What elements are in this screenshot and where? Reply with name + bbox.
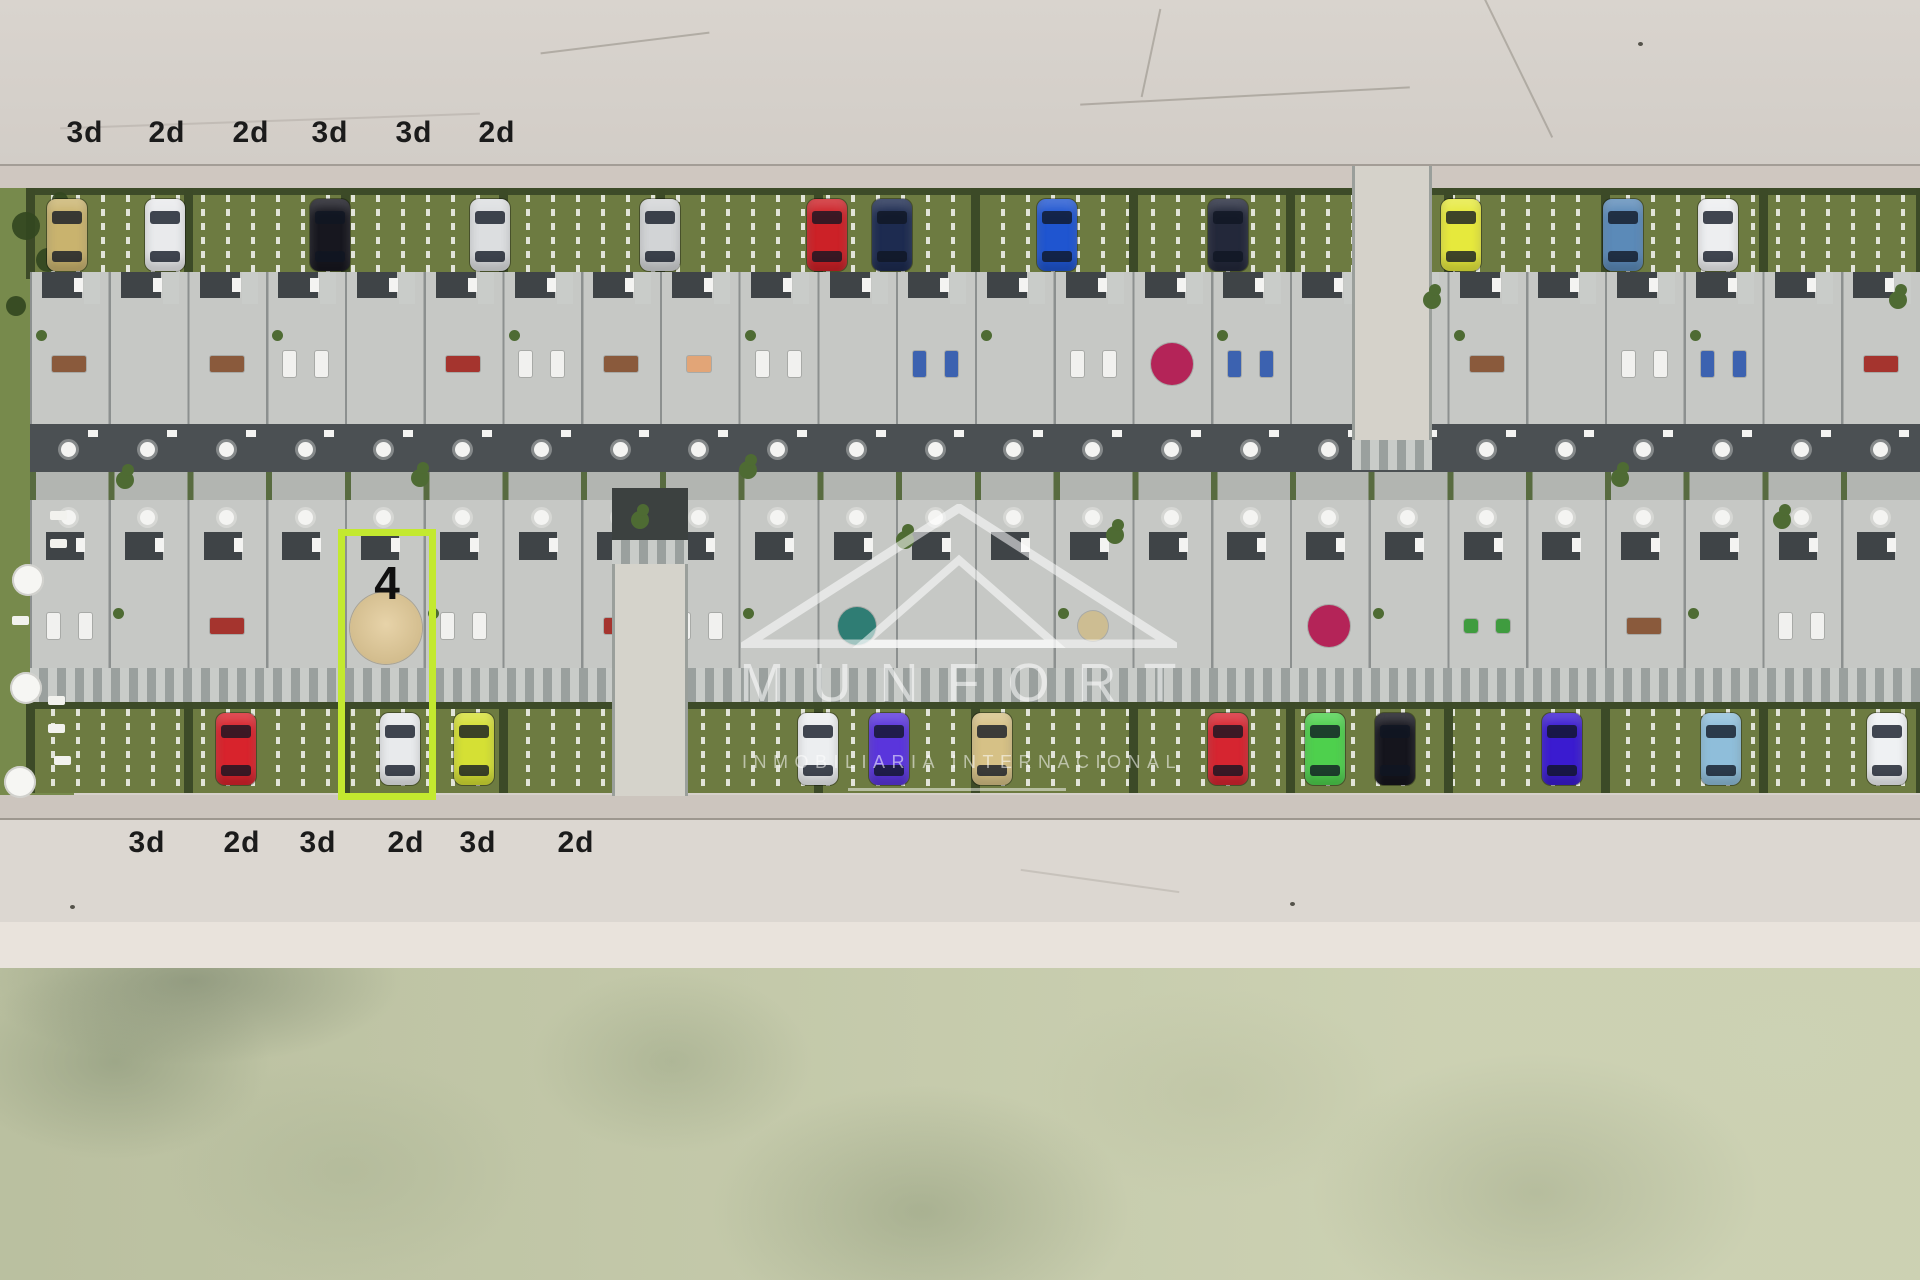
- terrace-furniture-white: [1811, 613, 1824, 639]
- unit-door: [389, 278, 398, 292]
- unit-door: [310, 278, 319, 292]
- terrace-furniture-blue: [1260, 351, 1273, 377]
- car-rear-window: [1872, 765, 1902, 776]
- parked-car: [1441, 199, 1481, 271]
- car-rear-window: [315, 251, 345, 262]
- car-windshield: [150, 211, 180, 224]
- terrace-furniture-white: [519, 351, 532, 377]
- unit-door: [942, 538, 951, 552]
- plan-label-bottom: 2d: [557, 826, 594, 860]
- car-rear-window: [803, 765, 833, 776]
- unit-door: [785, 538, 794, 552]
- terrace-furniture-white: [283, 351, 296, 377]
- terrace-furniture-red: [446, 356, 480, 372]
- car-windshield: [1547, 725, 1577, 738]
- highlight-unit-number: 4: [374, 556, 400, 610]
- terrace-furniture-crimson: [1151, 343, 1193, 385]
- unit-walkway: [950, 272, 966, 304]
- patio-table: [61, 442, 76, 457]
- unit-door: [1887, 538, 1896, 552]
- patio-table: [849, 442, 864, 457]
- patio-table: [770, 442, 785, 457]
- roof-plant: [272, 330, 283, 341]
- car-rear-window: [1213, 765, 1243, 776]
- car-rear-window: [1213, 251, 1243, 262]
- plan-label-bottom: 3d: [459, 826, 496, 860]
- unit-door: [1570, 278, 1579, 292]
- lower-sidewalk: [0, 795, 1920, 820]
- road-speck: [1290, 902, 1295, 906]
- car-windshield: [221, 725, 251, 738]
- parking-hedge: [499, 702, 508, 793]
- garden-tree: [417, 462, 429, 474]
- roof-plant: [1058, 608, 1069, 619]
- facade-door: [1112, 430, 1122, 437]
- facade-door: [1899, 430, 1909, 437]
- roof-plant: [981, 330, 992, 341]
- beach-umbrella: [10, 672, 42, 704]
- car-windshield: [977, 725, 1007, 738]
- facade-door: [324, 430, 334, 437]
- patio-table: [613, 442, 628, 457]
- north-passage-stairs: [1352, 440, 1432, 470]
- parking-hedge: [1129, 188, 1138, 279]
- unit-walkway: [320, 272, 336, 304]
- car-windshield: [1213, 211, 1243, 224]
- patio-table: [1873, 510, 1888, 525]
- terrace-furniture-red: [210, 618, 244, 634]
- parked-car: [807, 199, 847, 271]
- plan-label-top: 2d: [148, 116, 185, 150]
- patio-table: [534, 442, 549, 457]
- roof-plant: [1217, 330, 1228, 341]
- car-windshield: [812, 211, 842, 224]
- sun-lounger: [54, 756, 71, 765]
- patio-table: [219, 442, 234, 457]
- car-windshield: [1872, 725, 1902, 738]
- terrace-furniture-white: [79, 613, 92, 639]
- car-windshield: [1042, 211, 1072, 224]
- parking-hedge: [1286, 702, 1295, 793]
- patio-table: [1479, 510, 1494, 525]
- sun-lounger: [48, 724, 65, 733]
- facade-door: [1033, 430, 1043, 437]
- unit-walkway: [872, 272, 888, 304]
- patio-table: [1400, 510, 1415, 525]
- parked-car: [972, 713, 1012, 785]
- terrace-furniture-white: [788, 351, 801, 377]
- car-rear-window: [1547, 765, 1577, 776]
- unit-walkway: [1738, 272, 1754, 304]
- patio-table: [928, 510, 943, 525]
- car-windshield: [1703, 211, 1733, 224]
- unit-door: [1494, 538, 1503, 552]
- plan-label-bottom: 2d: [387, 826, 424, 860]
- patio-table: [1085, 442, 1100, 457]
- terrace-furniture-white: [1103, 351, 1116, 377]
- patio-table: [1006, 510, 1021, 525]
- unit-walkway: [242, 272, 258, 304]
- unit-door: [940, 278, 949, 292]
- patio-table: [849, 510, 864, 525]
- unit-door: [74, 278, 83, 292]
- patio-table: [1558, 510, 1573, 525]
- facade-door: [718, 430, 728, 437]
- road-speck: [1638, 42, 1643, 46]
- roof-plant: [743, 608, 754, 619]
- south-passage-stairs: [612, 540, 688, 564]
- north-row-facade-band: [30, 424, 1920, 472]
- terrace-furniture-white: [551, 351, 564, 377]
- corner-tree: [12, 212, 40, 240]
- plan-label-bottom: 3d: [128, 826, 165, 860]
- unit-door: [1730, 538, 1739, 552]
- unit-door: [1255, 278, 1264, 292]
- facade-door: [797, 430, 807, 437]
- terrace-furniture-white: [1071, 351, 1084, 377]
- building-row-south: [30, 500, 1920, 702]
- unit-door: [76, 538, 85, 552]
- car-rear-window: [977, 765, 1007, 776]
- terrace-furniture-white: [1622, 351, 1635, 377]
- car-rear-window: [1706, 765, 1736, 776]
- facade-door: [876, 430, 886, 437]
- facade-door: [639, 430, 649, 437]
- road-crack: [1141, 9, 1162, 97]
- terrace-furniture-blue: [913, 351, 926, 377]
- car-rear-window: [475, 251, 505, 262]
- unit-walkway: [1265, 272, 1281, 304]
- unit-walkway: [478, 272, 494, 304]
- patio-table: [1873, 442, 1888, 457]
- unit-door: [1098, 278, 1107, 292]
- unit-door: [1809, 538, 1818, 552]
- patio-table: [1636, 442, 1651, 457]
- parked-car: [470, 199, 510, 271]
- facade-door: [954, 430, 964, 437]
- road-speck: [70, 905, 75, 909]
- building-row-north: [30, 272, 1920, 472]
- car-windshield: [803, 725, 833, 738]
- terrace-furniture-blue: [1733, 351, 1746, 377]
- roof-plant: [1373, 608, 1384, 619]
- upper-road: [0, 0, 1920, 164]
- unit-door: [312, 538, 321, 552]
- unit-walkway: [163, 272, 179, 304]
- lower-road: [0, 820, 1920, 922]
- parking-hedge: [1601, 702, 1610, 793]
- terrace-furniture-green: [1464, 619, 1478, 633]
- unit-door: [704, 278, 713, 292]
- beach-scrub-area: [0, 968, 1920, 1280]
- patio-table: [376, 510, 391, 525]
- terrace-furniture-peach: [687, 356, 711, 372]
- roof-plant: [1690, 330, 1701, 341]
- car-windshield: [475, 211, 505, 224]
- patio-table: [376, 442, 391, 457]
- patio-table: [1794, 510, 1809, 525]
- parking-hedge: [1759, 702, 1768, 793]
- garden-tree: [745, 454, 757, 466]
- unit-walkway: [1029, 272, 1045, 304]
- south-passage: [612, 540, 688, 796]
- car-rear-window: [221, 765, 251, 776]
- unit-door: [547, 278, 556, 292]
- garden-tree: [1429, 284, 1441, 296]
- car-windshield: [1310, 725, 1340, 738]
- sun-lounger: [12, 616, 29, 625]
- terrace-furniture-white: [473, 613, 486, 639]
- unit-walkway: [84, 272, 100, 304]
- unit-walkway: [1108, 272, 1124, 304]
- parked-car: [798, 713, 838, 785]
- unit-door: [234, 538, 243, 552]
- unit-door: [468, 278, 477, 292]
- unit-door: [232, 278, 241, 292]
- unit-door: [862, 278, 871, 292]
- unit-door: [549, 538, 558, 552]
- patio-table: [219, 510, 234, 525]
- unit-door: [1336, 538, 1345, 552]
- unit-door: [1415, 538, 1424, 552]
- unit-walkway: [557, 272, 573, 304]
- beach-umbrella: [4, 766, 36, 798]
- patio-table: [1321, 442, 1336, 457]
- terrace-furniture-tan: [1078, 611, 1108, 641]
- plan-label-top: 3d: [66, 116, 103, 150]
- plan-label-top: 3d: [395, 116, 432, 150]
- facade-door: [167, 430, 177, 437]
- car-rear-window: [877, 251, 907, 262]
- facade-door: [88, 430, 98, 437]
- parked-car: [47, 199, 87, 271]
- facade-door: [403, 430, 413, 437]
- facade-door: [561, 430, 571, 437]
- roof-plant: [1688, 608, 1699, 619]
- unit-walkway: [1187, 272, 1203, 304]
- car-rear-window: [459, 765, 489, 776]
- car-windshield: [1608, 211, 1638, 224]
- parked-car: [640, 199, 680, 271]
- patio-table: [1636, 510, 1651, 525]
- car-windshield: [315, 211, 345, 224]
- unit-door: [1334, 278, 1343, 292]
- unit-door: [783, 278, 792, 292]
- car-rear-window: [150, 251, 180, 262]
- parked-car: [1603, 199, 1643, 271]
- parked-car: [310, 199, 350, 271]
- patio-table: [928, 442, 943, 457]
- terrace-furniture-crimson: [1308, 605, 1350, 647]
- plan-label-bottom: 2d: [223, 826, 260, 860]
- patio-table: [1243, 510, 1258, 525]
- unit-walkway: [635, 272, 651, 304]
- terrace-furniture-teal: [838, 607, 876, 645]
- car-windshield: [1213, 725, 1243, 738]
- patio-table: [140, 442, 155, 457]
- parked-car: [1375, 713, 1415, 785]
- beach-umbrella: [12, 564, 44, 596]
- car-windshield: [645, 211, 675, 224]
- car-windshield: [877, 211, 907, 224]
- car-windshield: [1380, 725, 1410, 738]
- car-rear-window: [812, 251, 842, 262]
- terrace-furniture-white: [709, 613, 722, 639]
- unit-door: [1177, 278, 1186, 292]
- patio-table: [534, 510, 549, 525]
- unit-walkway: [1659, 272, 1675, 304]
- parking-hedge: [1759, 188, 1768, 279]
- parked-car: [1698, 199, 1738, 271]
- unit-door: [1257, 538, 1266, 552]
- parked-car: [1305, 713, 1345, 785]
- facade-door: [482, 430, 492, 437]
- roof-plant: [745, 330, 756, 341]
- sun-lounger: [50, 511, 67, 520]
- unit-door: [1019, 278, 1028, 292]
- patio-table: [1243, 442, 1258, 457]
- patio-table: [1321, 510, 1336, 525]
- unit-door: [1492, 278, 1501, 292]
- patio-table: [1479, 442, 1494, 457]
- north-passage: [1352, 166, 1432, 440]
- parked-car: [454, 713, 494, 785]
- terrace-furniture-green: [1496, 619, 1510, 633]
- garden-tree: [637, 504, 649, 516]
- car-rear-window: [52, 251, 82, 262]
- upper-sidewalk: [0, 164, 1920, 188]
- terrace-furniture-white: [756, 351, 769, 377]
- patio-table: [1085, 510, 1100, 525]
- patio-table: [691, 442, 706, 457]
- unit-door: [1807, 278, 1816, 292]
- terrace-furniture-brown: [1470, 356, 1504, 372]
- terrace-furniture-white: [1779, 613, 1792, 639]
- garden-tree: [1617, 462, 1629, 474]
- parked-car: [1208, 199, 1248, 271]
- patio-table: [298, 510, 313, 525]
- terrace-furniture-brown: [604, 356, 638, 372]
- terrace-furniture-brown: [52, 356, 86, 372]
- facade-door: [1742, 430, 1752, 437]
- parked-car: [1867, 713, 1907, 785]
- plan-label-top: 2d: [478, 116, 515, 150]
- car-rear-window: [1703, 251, 1733, 262]
- patio-table: [1715, 442, 1730, 457]
- facade-door: [1191, 430, 1201, 437]
- unit-door: [864, 538, 873, 552]
- patio-table: [1164, 510, 1179, 525]
- terrace-furniture-white: [441, 613, 454, 639]
- patio-table: [140, 510, 155, 525]
- south-passage-shadow: [612, 488, 688, 540]
- parked-car: [1037, 199, 1077, 271]
- shore-strip: [0, 922, 1920, 968]
- terrace-furniture-white: [1654, 351, 1667, 377]
- car-windshield: [1446, 211, 1476, 224]
- parking-hedge: [971, 188, 980, 279]
- patio-table: [455, 442, 470, 457]
- patio-table: [691, 510, 706, 525]
- parking-hedge: [1444, 702, 1453, 793]
- road-crack: [1477, 0, 1553, 138]
- roof-plant: [1454, 330, 1465, 341]
- garden-tree: [1112, 519, 1124, 531]
- unit-door: [625, 278, 634, 292]
- site-plan-scene: 4 MUNFORT INMOBILIARIA INTERNACIONAL 3d2…: [0, 0, 1920, 1280]
- road-crack: [1021, 869, 1180, 893]
- car-windshield: [52, 211, 82, 224]
- terrace-furniture-white: [47, 613, 60, 639]
- facade-door: [1663, 430, 1673, 437]
- parked-car: [1542, 713, 1582, 785]
- parking-hedge: [1916, 188, 1920, 279]
- facade-door: [1269, 430, 1279, 437]
- unit-walkway: [1817, 272, 1833, 304]
- car-rear-window: [645, 251, 675, 262]
- road-crack: [1080, 86, 1410, 105]
- road-crack: [541, 32, 710, 55]
- parked-car: [216, 713, 256, 785]
- facade-door: [246, 430, 256, 437]
- terrace-furniture-red: [1864, 356, 1898, 372]
- unit-door: [1885, 278, 1894, 292]
- garden-strip: [30, 472, 1920, 500]
- garden-tree: [902, 524, 914, 536]
- terrace-furniture-white: [315, 351, 328, 377]
- parked-car: [1208, 713, 1248, 785]
- unit-walkway: [714, 272, 730, 304]
- terrace-furniture-blue: [945, 351, 958, 377]
- terrace-furniture-blue: [1228, 351, 1241, 377]
- car-rear-window: [874, 765, 904, 776]
- facade-door: [1506, 430, 1516, 437]
- car-windshield: [1706, 725, 1736, 738]
- patio-table: [1164, 442, 1179, 457]
- unit-walkway: [399, 272, 415, 304]
- unit-door: [155, 538, 164, 552]
- terrace-furniture-blue: [1701, 351, 1714, 377]
- garden-tree: [122, 464, 134, 476]
- roof-plant: [36, 330, 47, 341]
- unit-door: [1179, 538, 1188, 552]
- patio-table: [1006, 442, 1021, 457]
- car-rear-window: [1446, 251, 1476, 262]
- car-rear-window: [1042, 251, 1072, 262]
- patio-table: [455, 510, 470, 525]
- facade-door: [1821, 430, 1831, 437]
- parked-car: [872, 199, 912, 271]
- garden-tree: [1895, 284, 1907, 296]
- unit-door: [1649, 278, 1658, 292]
- car-windshield: [459, 725, 489, 738]
- plan-label-top: 2d: [232, 116, 269, 150]
- corner-tree: [6, 296, 26, 316]
- unit-door: [470, 538, 479, 552]
- parking-hedge: [1129, 702, 1138, 793]
- car-rear-window: [1310, 765, 1340, 776]
- facade-door: [1584, 430, 1594, 437]
- patio-table: [1715, 510, 1730, 525]
- unit-door: [1651, 538, 1660, 552]
- parking-hedge: [1916, 702, 1920, 793]
- parked-car: [1701, 713, 1741, 785]
- garden-tree: [1779, 504, 1791, 516]
- unit-door: [1728, 278, 1737, 292]
- unit-walkway: [793, 272, 809, 304]
- terrace-furniture-brown: [1627, 618, 1661, 634]
- unit-door: [706, 538, 715, 552]
